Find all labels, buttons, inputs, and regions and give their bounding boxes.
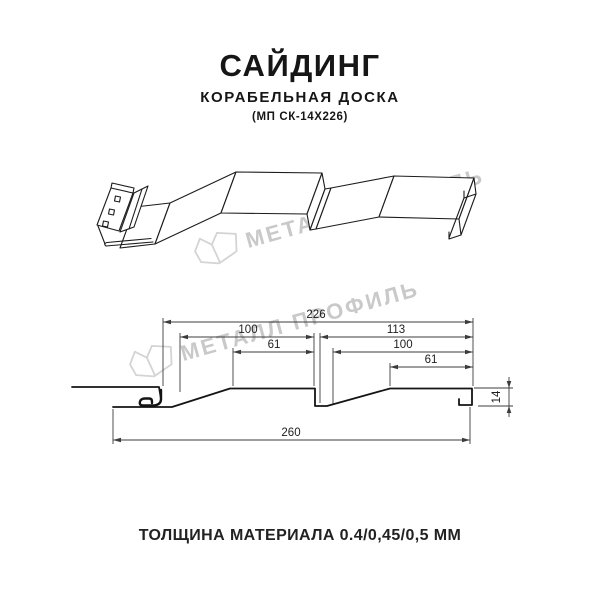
dim-260: 260 [281,427,300,439]
dim-14: 14 [491,390,503,403]
lock-lip-edge [98,226,105,244]
profile-outline [113,389,472,408]
dim-100-right: 100 [393,339,412,351]
adjacent-panel-edge [72,387,161,399]
dim-226: 226 [306,309,325,321]
dimension-arrows [113,320,511,443]
dim-61-left: 61 [268,339,281,351]
material-thickness-note: ТОЛЩИНА МАТЕРИАЛА 0.4/0,45/0,5 ММ [0,527,600,545]
technical-drawing-canvas: МЕТАЛЛ ПРОФИЛЬ МЕТАЛЛ ПРОФИЛЬ [0,0,600,600]
product-drawing-page: САЙДИНГ КОРАБЕЛЬНАЯ ДОСКА (МП СК-14Х226)… [0,0,600,600]
dim-61-right: 61 [425,354,438,366]
section-profile [72,387,472,407]
panel-slope-2 [316,176,394,229]
panel-face-1 [221,172,322,214]
panel-face-2 [379,176,474,219]
dimension-lines [113,322,473,440]
watermark-bottom: МЕТАЛЛ ПРОФИЛЬ [127,273,423,382]
dim-100-left: 100 [238,324,257,336]
lock-hook [140,390,161,406]
brand-logo-icon [127,341,177,382]
dim-113: 113 [387,324,405,336]
brand-logo-icon [192,228,242,269]
